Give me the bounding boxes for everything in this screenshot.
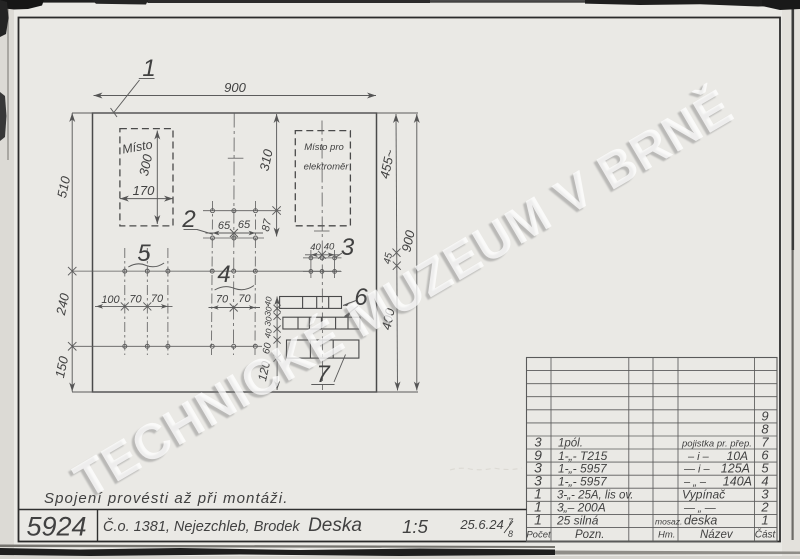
svg-text:70: 70	[151, 293, 164, 305]
svg-text:Vypínač: Vypínač	[682, 488, 725, 502]
svg-text:65: 65	[218, 220, 231, 232]
svg-text:1-„- 5957: 1-„- 5957	[558, 462, 608, 476]
svg-text:– i –: – i –	[687, 451, 710, 463]
svg-text:1: 1	[534, 512, 542, 528]
svg-text:100: 100	[101, 294, 120, 306]
svg-text:elektroměr: elektroměr	[304, 162, 350, 173]
svg-text:Název: Název	[700, 529, 734, 541]
svg-text:Počet: Počet	[526, 530, 551, 541]
svg-text:70: 70	[238, 293, 251, 305]
svg-text:900: 900	[224, 80, 246, 95]
svg-text:70: 70	[216, 294, 229, 306]
svg-text:Pozn.: Pozn.	[575, 529, 604, 541]
svg-text:5924: 5924	[26, 512, 86, 542]
svg-text:1: 1	[761, 513, 768, 528]
svg-text:1:5: 1:5	[402, 516, 428, 537]
svg-text:5: 5	[137, 240, 151, 267]
svg-text:Část: Část	[755, 528, 777, 541]
svg-text:40: 40	[310, 242, 321, 253]
svg-text:1-„- 5957: 1-„- 5957	[558, 475, 608, 489]
svg-text:40: 40	[324, 242, 335, 253]
svg-text:mosaz.: mosaz.	[655, 517, 682, 527]
svg-text:70: 70	[129, 294, 142, 306]
svg-text:3„– 200A: 3„– 200A	[557, 501, 606, 515]
svg-text:3: 3	[341, 234, 355, 261]
svg-text:140A: 140A	[723, 475, 752, 489]
svg-text:Deska: Deska	[308, 515, 362, 536]
svg-text:8: 8	[508, 529, 513, 539]
svg-text:2: 2	[181, 206, 195, 233]
svg-text:Místo pro: Místo pro	[304, 142, 344, 153]
svg-text:deska: deska	[684, 514, 717, 528]
svg-text:65: 65	[238, 219, 251, 231]
svg-text:170: 170	[133, 183, 155, 198]
svg-text:— i –: — i –	[683, 464, 711, 476]
svg-text:25 silná: 25 silná	[556, 514, 599, 528]
svg-text:25.6.24: 25.6.24	[459, 517, 503, 532]
svg-text:4: 4	[217, 261, 230, 288]
svg-text:1pól.: 1pól.	[558, 438, 583, 450]
svg-text:125A: 125A	[721, 462, 750, 476]
svg-text:Hm.: Hm.	[658, 530, 675, 541]
svg-text:Č.o. 1381, Nejezchleb, Brodek: Č.o. 1381, Nejezchleb, Brodek	[103, 518, 300, 535]
svg-text:1: 1	[142, 55, 155, 82]
svg-text:pojistka pr. přep.: pojistka pr. přep.	[681, 439, 752, 450]
